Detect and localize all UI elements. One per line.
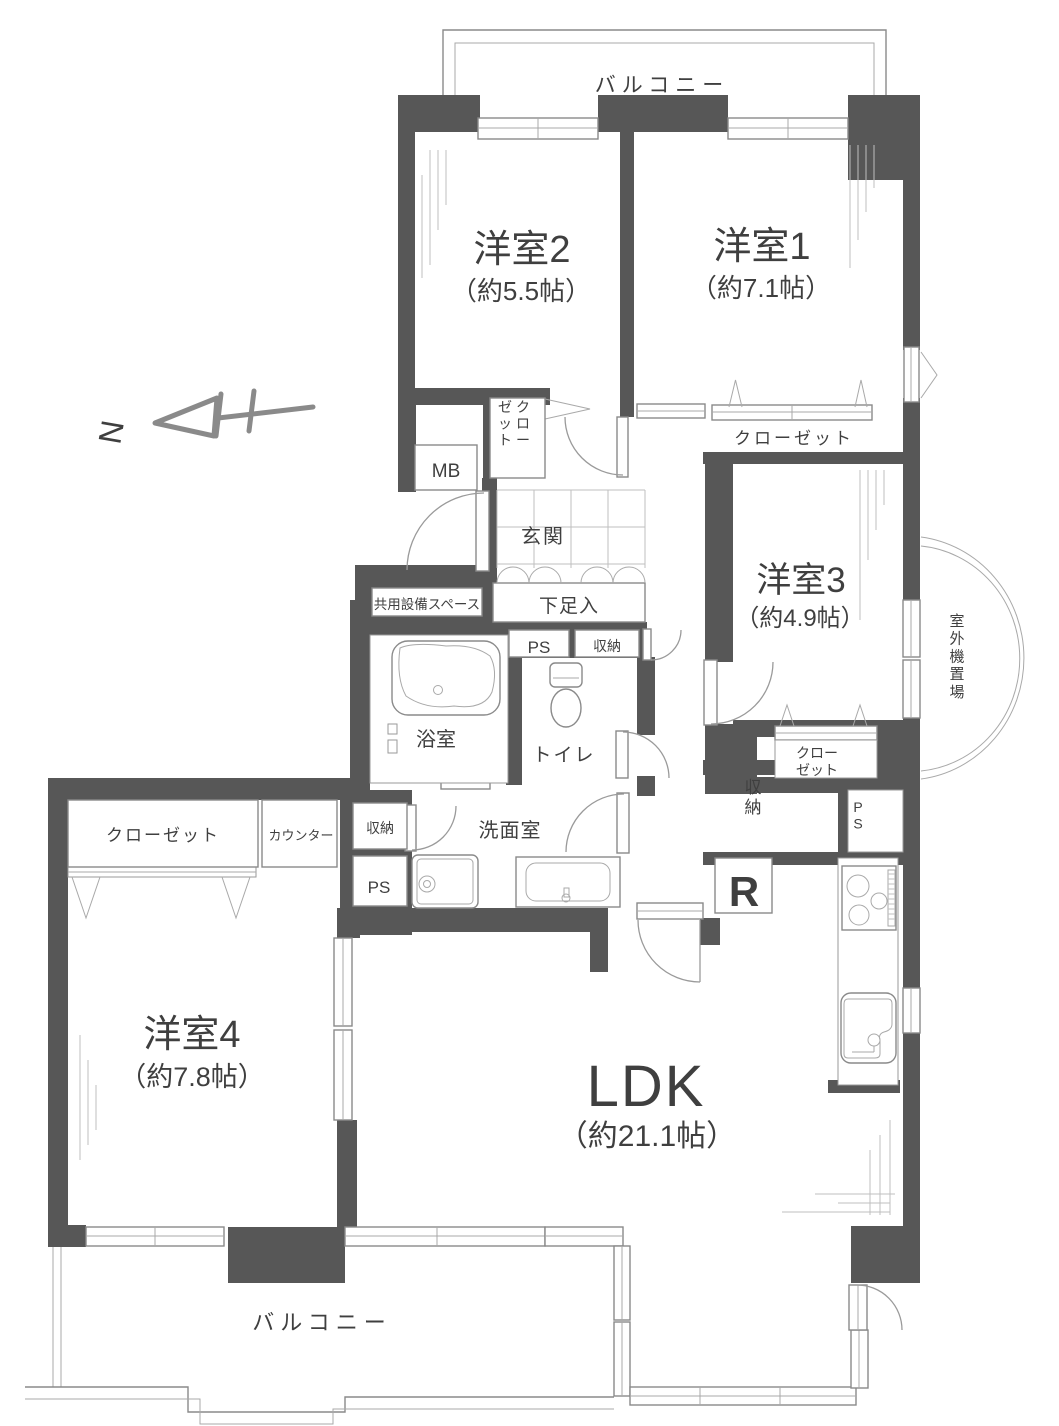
label-room1-name: 洋室1 (713, 226, 810, 268)
label-room2-size: （約5.5帖） (451, 276, 591, 306)
window-room1-right (904, 347, 937, 402)
closet-room1-sill (712, 405, 872, 420)
label-toilet: トイレ (532, 745, 595, 766)
label-shuno-left: 収納 (366, 820, 394, 836)
window-room2-top (478, 118, 598, 139)
compass-north-arrow (155, 391, 313, 436)
label-room2-name: 洋室2 (473, 229, 570, 271)
label-balcony-top: バルコニー (595, 74, 730, 97)
label-room4-size: （約7.8帖） (119, 1062, 265, 1092)
window-ldk-bottom-right (630, 1387, 856, 1405)
genkan-tiles (497, 490, 645, 583)
hall-ldk-sliding-door (637, 903, 703, 982)
label-ldk-name: LDK (587, 1054, 706, 1119)
window-ldk-corner (545, 1227, 630, 1396)
room3-door (704, 660, 773, 725)
window-ldk-right (851, 1330, 868, 1388)
label-closet-room4: クローゼット (106, 826, 220, 845)
window-room1-top (728, 118, 848, 139)
toilet-door (616, 731, 669, 778)
label-closet-genkan-r: クロー (516, 399, 530, 448)
label-outdoor-unit: 室外機置場 (949, 613, 964, 701)
room1-door (565, 404, 705, 477)
vanity-sink (516, 857, 620, 907)
label-north: N (91, 418, 130, 447)
entrance-door (407, 491, 489, 571)
window-room4-bottom (86, 1227, 224, 1246)
storage-top-door (643, 629, 681, 660)
label-refrigerator: R (729, 868, 759, 915)
label-room3-name: 洋室3 (756, 561, 845, 600)
label-ps-hall: PS (853, 799, 862, 832)
washing-machine-pan (412, 855, 478, 908)
closet-room3-sill (775, 726, 877, 740)
label-counter: カウンター (268, 828, 333, 843)
ldk-balcony-door (849, 1285, 902, 1330)
room-labels: バルコニー洋室2（約5.5帖）洋室1（約7.1帖）クローゼット洋室3（約4.9帖… (91, 74, 964, 1335)
label-shared-space: 共用設備スペース (374, 597, 480, 612)
window-kitchen-right (903, 988, 920, 1033)
stove-icon (842, 866, 896, 930)
label-room3-size: （約4.9帖） (735, 605, 864, 632)
closet-room4-rail (68, 867, 256, 877)
window-ldk-bottom-left (345, 1227, 545, 1246)
label-shuno-top: 収納 (593, 638, 621, 654)
window-room3-right (903, 600, 920, 718)
storage-left-door (405, 805, 456, 851)
label-closet-genkan-l: ゼット (498, 399, 512, 448)
label-closet-room3-a: クロー (796, 745, 838, 761)
kitchen-sink (841, 993, 896, 1063)
floorplan-drawing: バルコニー洋室2（約5.5帖）洋室1（約7.1帖）クローゼット洋室3（約4.9帖… (0, 0, 1059, 1426)
doors (405, 404, 902, 1330)
label-ldk-size: （約21.1帖） (558, 1120, 736, 1153)
label-ps-left: PS (368, 878, 391, 897)
label-room4-name: 洋室4 (143, 1014, 240, 1056)
label-bath: 浴室 (416, 728, 456, 751)
label-ps-top: PS (528, 638, 551, 657)
label-mb-label: MB (432, 461, 461, 482)
toilet-icon (550, 663, 582, 727)
outdoor-unit-area (921, 537, 1024, 779)
label-closet-room3-b: ゼット (796, 762, 838, 778)
floorplan-page: バルコニー洋室2（約5.5帖）洋室1（約7.1帖）クローゼット洋室3（約4.9帖… (0, 0, 1059, 1426)
bathtub (370, 635, 508, 783)
label-washroom: 洗面室 (479, 819, 542, 842)
washroom-door (566, 793, 629, 853)
label-genkan: 玄関 (521, 525, 565, 548)
label-balcony-bottom: バルコニー (252, 1310, 392, 1335)
label-room1-size: （約7.1帖） (691, 273, 831, 303)
label-closet-room1: クローゼット (734, 429, 854, 448)
label-shoe-cabinet: 下足入 (539, 596, 599, 617)
partition-room4-ldk (334, 938, 352, 1120)
label-shuno-hall: 収納 (745, 778, 762, 817)
